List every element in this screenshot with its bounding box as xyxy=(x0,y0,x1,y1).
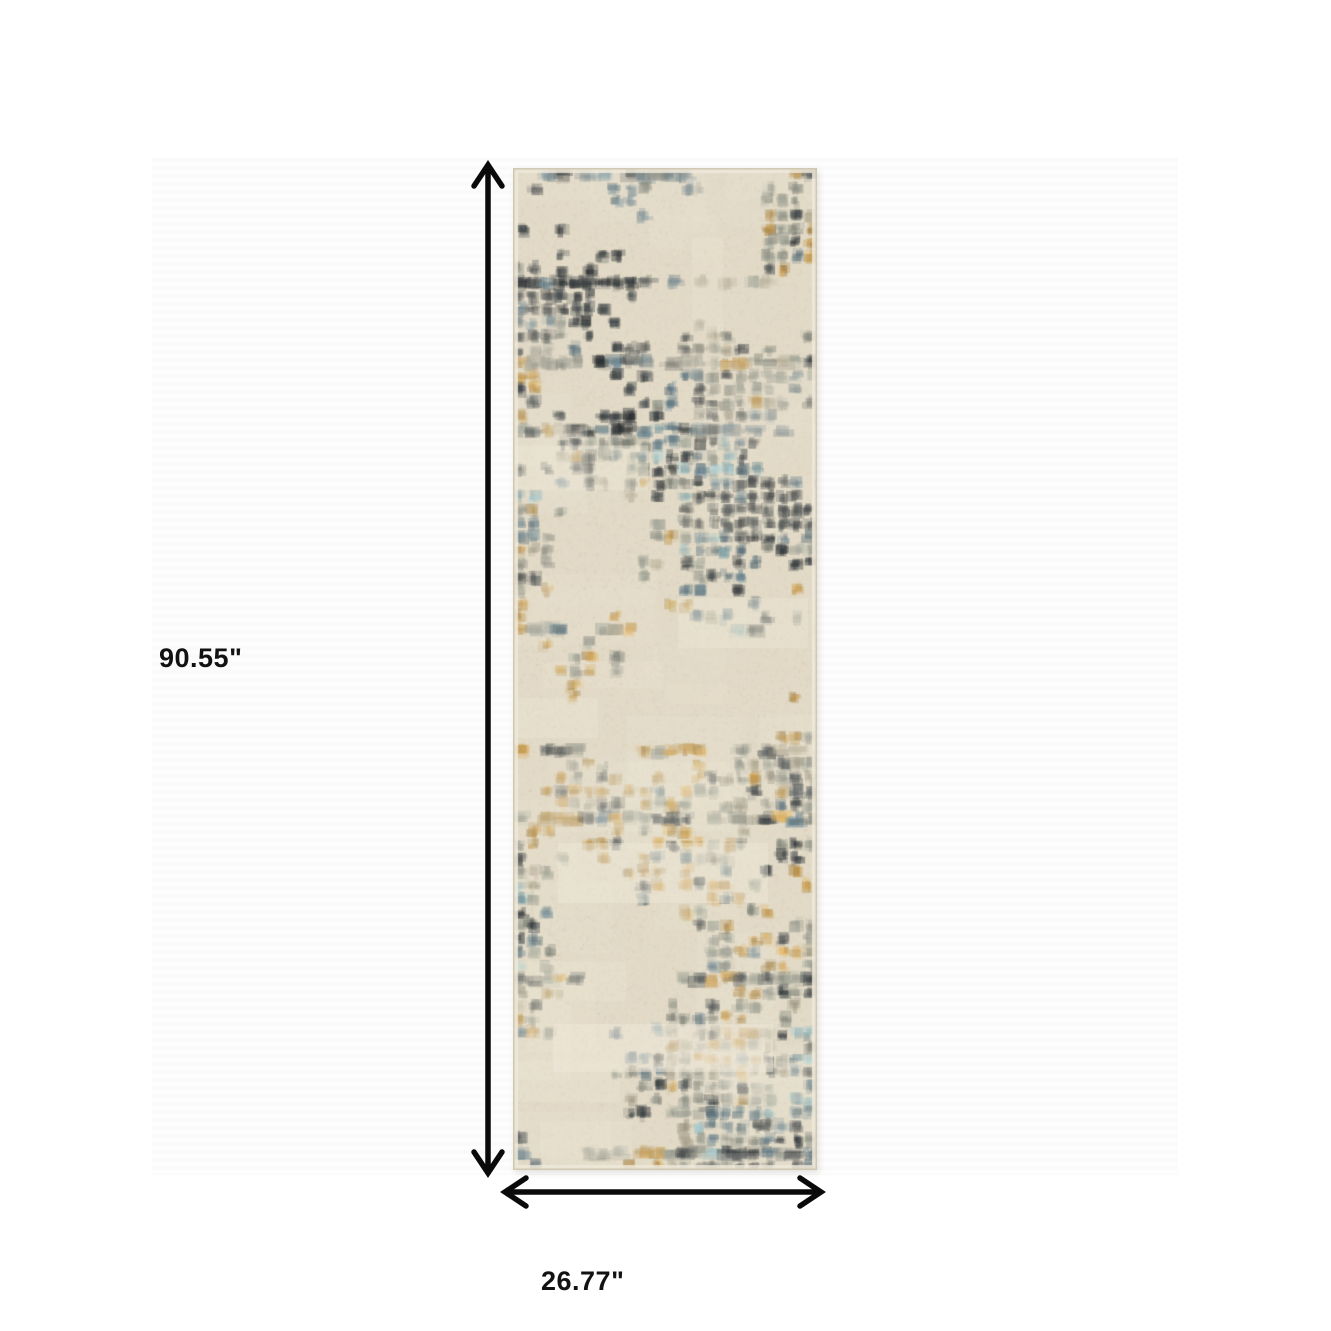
height-dimension-label: 90.55" xyxy=(159,645,242,672)
width-dimension-label: 26.77" xyxy=(541,1268,624,1295)
width-double-arrow-icon xyxy=(498,1172,828,1212)
rug-image xyxy=(513,168,817,1170)
product-dimension-image: 90.55" 26.77" xyxy=(0,0,1331,1331)
height-double-arrow-icon xyxy=(466,158,510,1180)
rug-pattern-canvas xyxy=(513,168,817,1170)
